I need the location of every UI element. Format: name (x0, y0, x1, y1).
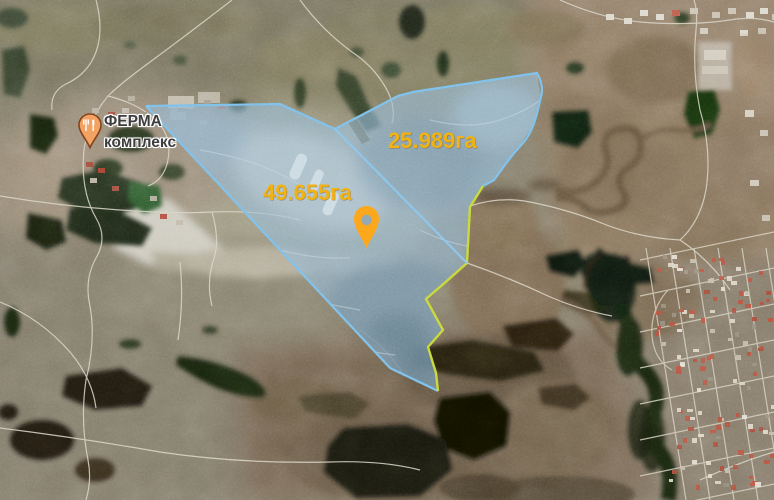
svg-text:49.655га: 49.655га (263, 180, 352, 205)
svg-text:25.989га: 25.989га (388, 128, 477, 153)
svg-text:ФЕРМА: ФЕРМА (104, 113, 162, 130)
svg-text:комплекс: комплекс (104, 134, 176, 151)
